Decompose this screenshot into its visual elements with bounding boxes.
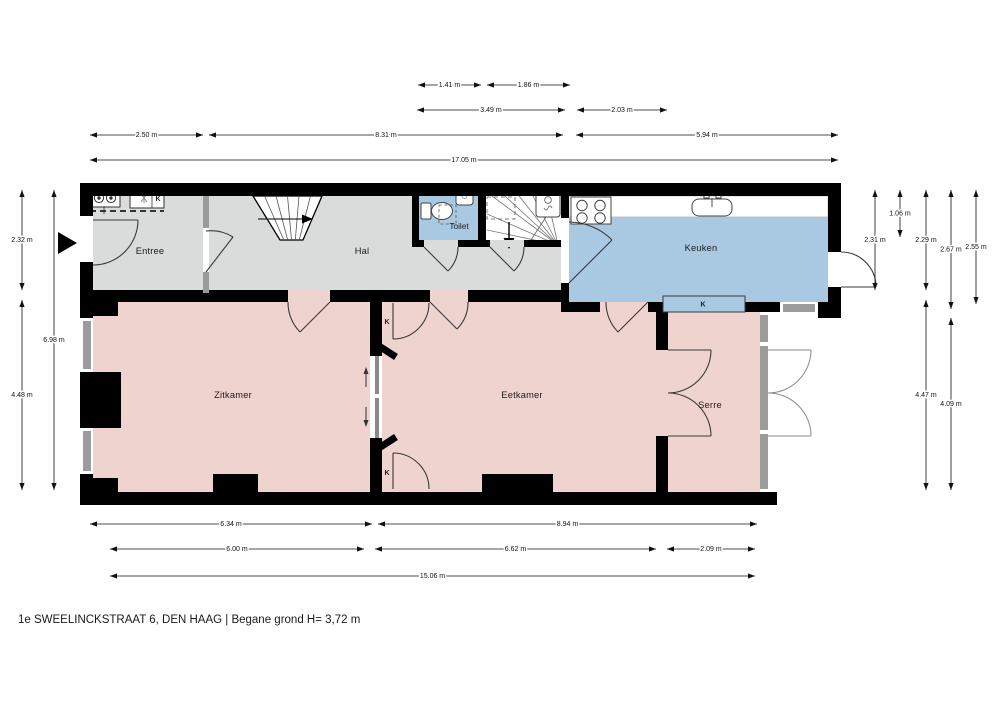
dimension-1.06 m: 1.06 m	[889, 190, 911, 237]
dimension-8.31 m: 8.31 m	[209, 132, 563, 139]
dimension-2.32 m: 2.32 m	[11, 190, 33, 290]
dimension-6.00 m: 6.00 m	[110, 546, 364, 553]
label-toilet: Toilet	[449, 221, 469, 231]
svg-text:6.98 m: 6.98 m	[43, 337, 65, 344]
svg-text:2.29 m: 2.29 m	[915, 237, 937, 244]
label-divider-bottom-closet: K	[384, 470, 389, 477]
dimension-3.49 m: 3.49 m	[417, 107, 565, 114]
dimension-1.41 m: 1.41 m	[418, 82, 481, 89]
svg-text:1.86 m: 1.86 m	[518, 82, 540, 89]
entrance-arrow-icon	[58, 232, 77, 254]
svg-text:4.48 m: 4.48 m	[11, 392, 33, 399]
dimension-6.34 m: 6.34 m	[90, 521, 372, 528]
label-eetkamer: Eetkamer	[501, 390, 542, 400]
label-hal: Hal	[355, 246, 370, 256]
svg-text:6.62 m: 6.62 m	[505, 546, 527, 553]
dimension-15.06 m: 15.06 m	[110, 573, 755, 580]
serre-glass-wall	[760, 312, 768, 492]
window-keuken	[780, 304, 818, 312]
svg-text:3.49 m: 3.49 m	[480, 107, 502, 114]
svg-text:2.09 m: 2.09 m	[700, 546, 722, 553]
dimension-2.50 m: 2.50 m	[90, 132, 203, 139]
dimension-2.29 m: 2.29 m	[915, 190, 937, 290]
svg-text:2.50 m: 2.50 m	[136, 132, 158, 139]
floorplan-drawing: Entree Hal Toilet Keuken Zitkamer Eetkam…	[0, 0, 1000, 707]
svg-text:15.06 m: 15.06 m	[420, 573, 445, 580]
dimension-2.31 m: 2.31 m	[864, 190, 886, 290]
label-serre: Serre	[698, 400, 722, 410]
svg-text:2.32 m: 2.32 m	[11, 237, 33, 244]
stove-icon	[571, 197, 611, 224]
svg-text:8.31 m: 8.31 m	[375, 132, 397, 139]
window-zitkamer-1	[83, 318, 91, 372]
plan-title: 1e SWEELINCKSTRAAT 6, DEN HAAG | Begane …	[18, 614, 360, 626]
dimension-4.47 m: 4.47 m	[915, 300, 937, 490]
svg-text:1.41 m: 1.41 m	[439, 82, 461, 89]
label-entree-closet: K	[155, 196, 160, 203]
svg-text:2.67 m: 2.67 m	[940, 246, 962, 253]
dimension-8.94 m: 8.94 m	[378, 521, 757, 528]
label-entree: Entree	[136, 246, 165, 256]
dimension-2.09 m: 2.09 m	[667, 546, 755, 553]
svg-text:4.09 m: 4.09 m	[940, 401, 962, 408]
dimension-17.05 m: 17.05 m	[90, 157, 838, 164]
label-keuken-closet: K	[700, 302, 705, 309]
dimension-2.55 m: 2.55 m	[965, 190, 987, 304]
svg-text:4.47 m: 4.47 m	[915, 392, 937, 399]
svg-text:2.31 m: 2.31 m	[864, 237, 886, 244]
dimension-4.09 m: 4.09 m	[940, 318, 962, 490]
dimension-1.86 m: 1.86 m	[487, 82, 570, 89]
svg-text:17.05 m: 17.05 m	[451, 157, 476, 164]
dimension-2.67 m: 2.67 m	[940, 190, 962, 309]
svg-text:2.03 m: 2.03 m	[611, 107, 633, 114]
dimension-4.48 m: 4.48 m	[11, 300, 33, 490]
floorplan-page: Entree Hal Toilet Keuken Zitkamer Eetkam…	[0, 0, 1000, 707]
dimension-6.62 m: 6.62 m	[375, 546, 656, 553]
label-keuken: Keuken	[685, 243, 718, 253]
exterior-garden-doors	[768, 350, 811, 436]
svg-text:6.34 m: 6.34 m	[220, 521, 242, 528]
svg-text:2.55 m: 2.55 m	[965, 244, 987, 251]
door-keuken-exterior	[841, 252, 876, 287]
svg-text:5.94 m: 5.94 m	[696, 132, 718, 139]
svg-text:1.06 m: 1.06 m	[889, 210, 911, 217]
dimension-2.03 m: 2.03 m	[577, 107, 667, 114]
label-divider-top-closet: K	[384, 319, 389, 326]
window-zitkamer-2	[83, 428, 91, 474]
label-zitkamer: Zitkamer	[214, 390, 252, 400]
dimension-5.94 m: 5.94 m	[576, 132, 838, 139]
svg-text:6.00 m: 6.00 m	[226, 546, 248, 553]
svg-text:8.94 m: 8.94 m	[557, 521, 579, 528]
